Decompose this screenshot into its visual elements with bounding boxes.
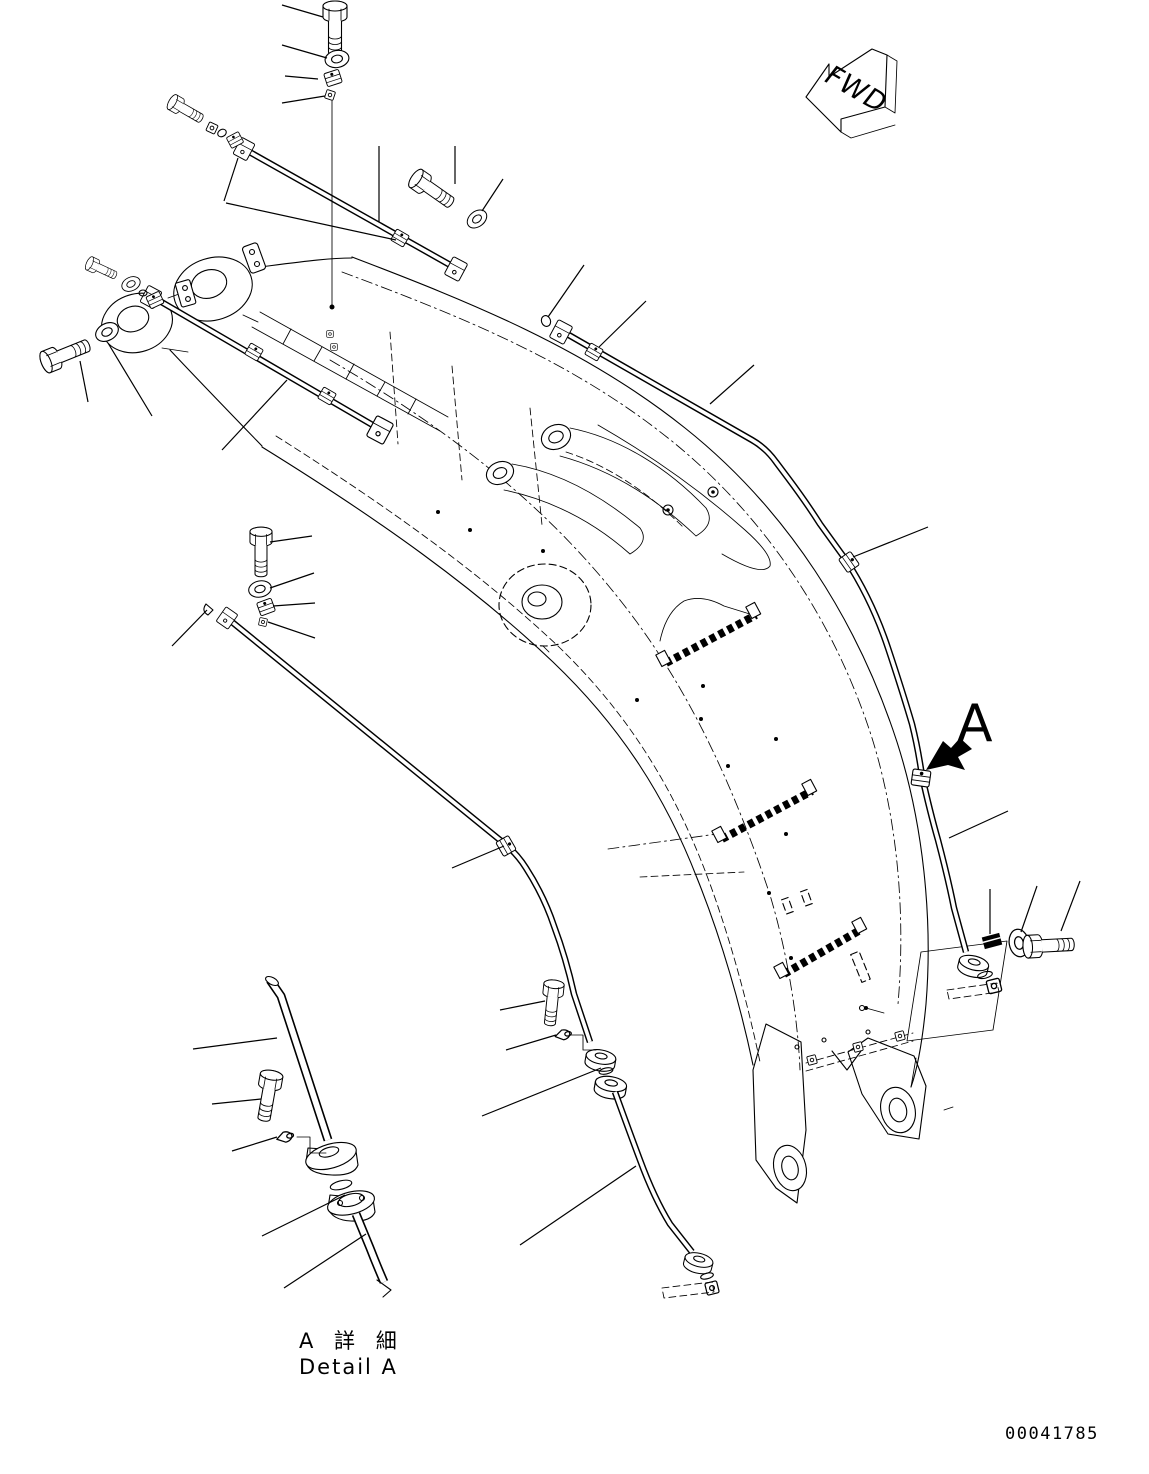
leader-line — [193, 1038, 277, 1049]
boom-inner-edge — [262, 447, 753, 1065]
hex-bolt — [1022, 933, 1074, 958]
grease-fitting — [275, 1130, 294, 1144]
tube-clamp-half — [324, 69, 343, 87]
leader-line — [273, 603, 315, 606]
hex-fitting — [986, 978, 1002, 994]
leader-line — [500, 1001, 545, 1010]
leader-line — [520, 1166, 636, 1245]
bolt-top-stack — [323, 1, 350, 310]
bolt-detail-a — [252, 1069, 294, 1145]
detail-a-arrow — [926, 738, 972, 770]
boom-section-line-2 — [452, 366, 462, 480]
boom-web-line-2 — [640, 872, 744, 877]
fasteners — [37, 1, 1074, 1144]
leader-line — [282, 45, 327, 58]
boom-inner-hidden-edge — [276, 436, 760, 1062]
leader-line — [548, 265, 584, 317]
clamp-block — [982, 933, 1002, 949]
pipe-long-right — [540, 314, 1002, 999]
tube-clamp-half — [256, 598, 275, 616]
hex-bolt — [323, 1, 347, 55]
leader-lines — [80, 5, 1080, 1288]
pipe-long-left — [204, 604, 719, 1298]
detail-a-tube-lower — [325, 1178, 391, 1297]
cylinder-bracket — [483, 420, 771, 570]
leader-line — [270, 536, 312, 542]
leader-line — [270, 573, 314, 588]
parts-diagram-page: FWD A A 詳 細 Detail A 00041785 — [0, 0, 1149, 1474]
leader-line — [853, 527, 928, 557]
o-ring-large — [329, 1178, 352, 1191]
leader-line — [232, 1137, 277, 1151]
boom-mid-boss — [499, 564, 591, 652]
detail-a-caption: A 詳 細 Detail A — [299, 1329, 404, 1379]
hex-bolt — [252, 1069, 283, 1123]
hex-bolt — [540, 979, 565, 1027]
pipe-flange-foot — [956, 953, 990, 981]
pipe-end-fitting — [549, 319, 573, 344]
pipe-clamp-detail-a — [911, 769, 931, 787]
boom-outer-hidden-edge — [342, 272, 901, 1004]
leader-line — [599, 301, 646, 347]
leader-line — [482, 179, 503, 211]
boom-web-line-1 — [608, 833, 724, 849]
drawing-number: 00041785 — [1005, 1424, 1099, 1444]
leader-line — [108, 343, 152, 416]
spring-washer — [324, 49, 351, 70]
hex-bolt — [406, 167, 458, 213]
leader-line — [212, 1099, 261, 1104]
boom-structure — [94, 242, 1007, 1203]
detail-a-marker: A — [926, 694, 993, 770]
mating-flange — [593, 1074, 628, 1101]
clamp-nut — [258, 617, 267, 626]
plate-nut — [331, 344, 338, 351]
leader-line — [452, 846, 504, 868]
detail-caption-en: Detail A — [299, 1355, 398, 1379]
pipe-strap-bands — [656, 598, 867, 978]
stud-bolt — [165, 93, 206, 126]
hex-bolt — [37, 334, 93, 374]
detail-caption-jp: A 詳 細 — [299, 1329, 404, 1353]
bolt-top-mid — [406, 167, 490, 232]
leader-line — [80, 361, 88, 402]
boom-outer-edge — [352, 257, 928, 1087]
plate-nut — [327, 331, 334, 338]
boom-piping-diagram: FWD A A 詳 細 Detail A 00041785 — [0, 0, 1149, 1474]
seal-sliver — [204, 604, 213, 615]
washer — [464, 206, 490, 231]
leader-line — [949, 811, 1008, 838]
leader-line — [172, 610, 207, 646]
fwd-direction-arrow: FWD — [806, 49, 897, 138]
leader-line — [710, 365, 754, 404]
boom-surface-marks — [436, 510, 884, 1013]
pipe-upper-1 — [233, 137, 468, 281]
leader-line — [268, 622, 315, 638]
hex-bolt — [250, 527, 272, 577]
stud-bolt — [84, 256, 119, 283]
bolt-left — [37, 319, 121, 375]
boom-section-line-3 — [530, 408, 542, 525]
nut — [206, 122, 218, 134]
boom-foot — [94, 242, 352, 446]
spring-washer — [247, 579, 273, 600]
leader-line — [282, 96, 325, 103]
leader-line — [224, 158, 238, 201]
leader-line — [1061, 881, 1080, 931]
leader-line — [482, 1068, 601, 1116]
boom-tip-fork — [753, 1024, 953, 1203]
seal-ring — [540, 314, 552, 327]
pipe-end-flange — [366, 415, 394, 444]
pipe-upper-2 — [140, 285, 394, 444]
leader-line — [285, 76, 318, 79]
leader-line — [1021, 886, 1037, 932]
clamp-nut — [324, 89, 335, 100]
hydraulic-pipes — [140, 137, 1002, 1298]
stud-top-left — [165, 93, 244, 148]
leader-line — [506, 1035, 556, 1050]
bolt-right-cluster — [982, 928, 1075, 959]
leader-line — [284, 1234, 366, 1288]
leader-line — [282, 5, 323, 17]
washer-ring — [216, 128, 227, 139]
pipe-flange-foot — [584, 1048, 617, 1074]
